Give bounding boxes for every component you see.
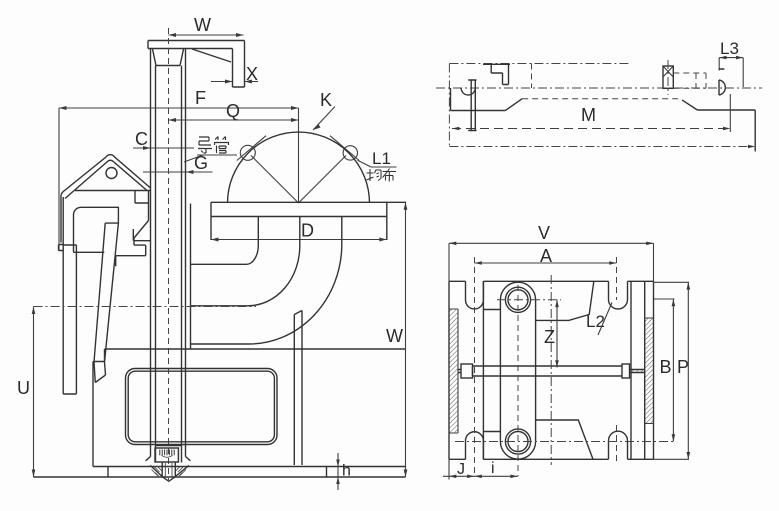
svg-text:W: W: [194, 15, 211, 35]
svg-text:Q: Q: [226, 101, 240, 121]
svg-text:L1: L1: [372, 149, 391, 168]
svg-text:M: M: [581, 105, 596, 125]
svg-text:X: X: [246, 64, 258, 84]
svg-text:i: i: [491, 460, 495, 477]
svg-text:h: h: [342, 463, 351, 480]
svg-text:B: B: [660, 357, 672, 377]
svg-text:L2: L2: [586, 312, 605, 331]
svg-text:C: C: [135, 129, 148, 149]
svg-text:G: G: [194, 153, 208, 173]
svg-text:U: U: [17, 378, 30, 398]
svg-text:V: V: [538, 223, 550, 243]
svg-text:L3: L3: [720, 39, 739, 58]
svg-text:K: K: [320, 90, 332, 110]
svg-text:W: W: [386, 326, 403, 346]
svg-text:F: F: [195, 88, 206, 108]
svg-text:P: P: [677, 357, 689, 377]
svg-text:D: D: [301, 221, 314, 241]
svg-text:A: A: [540, 246, 552, 266]
svg-text:J: J: [457, 461, 465, 478]
svg-text:Z: Z: [544, 327, 555, 347]
